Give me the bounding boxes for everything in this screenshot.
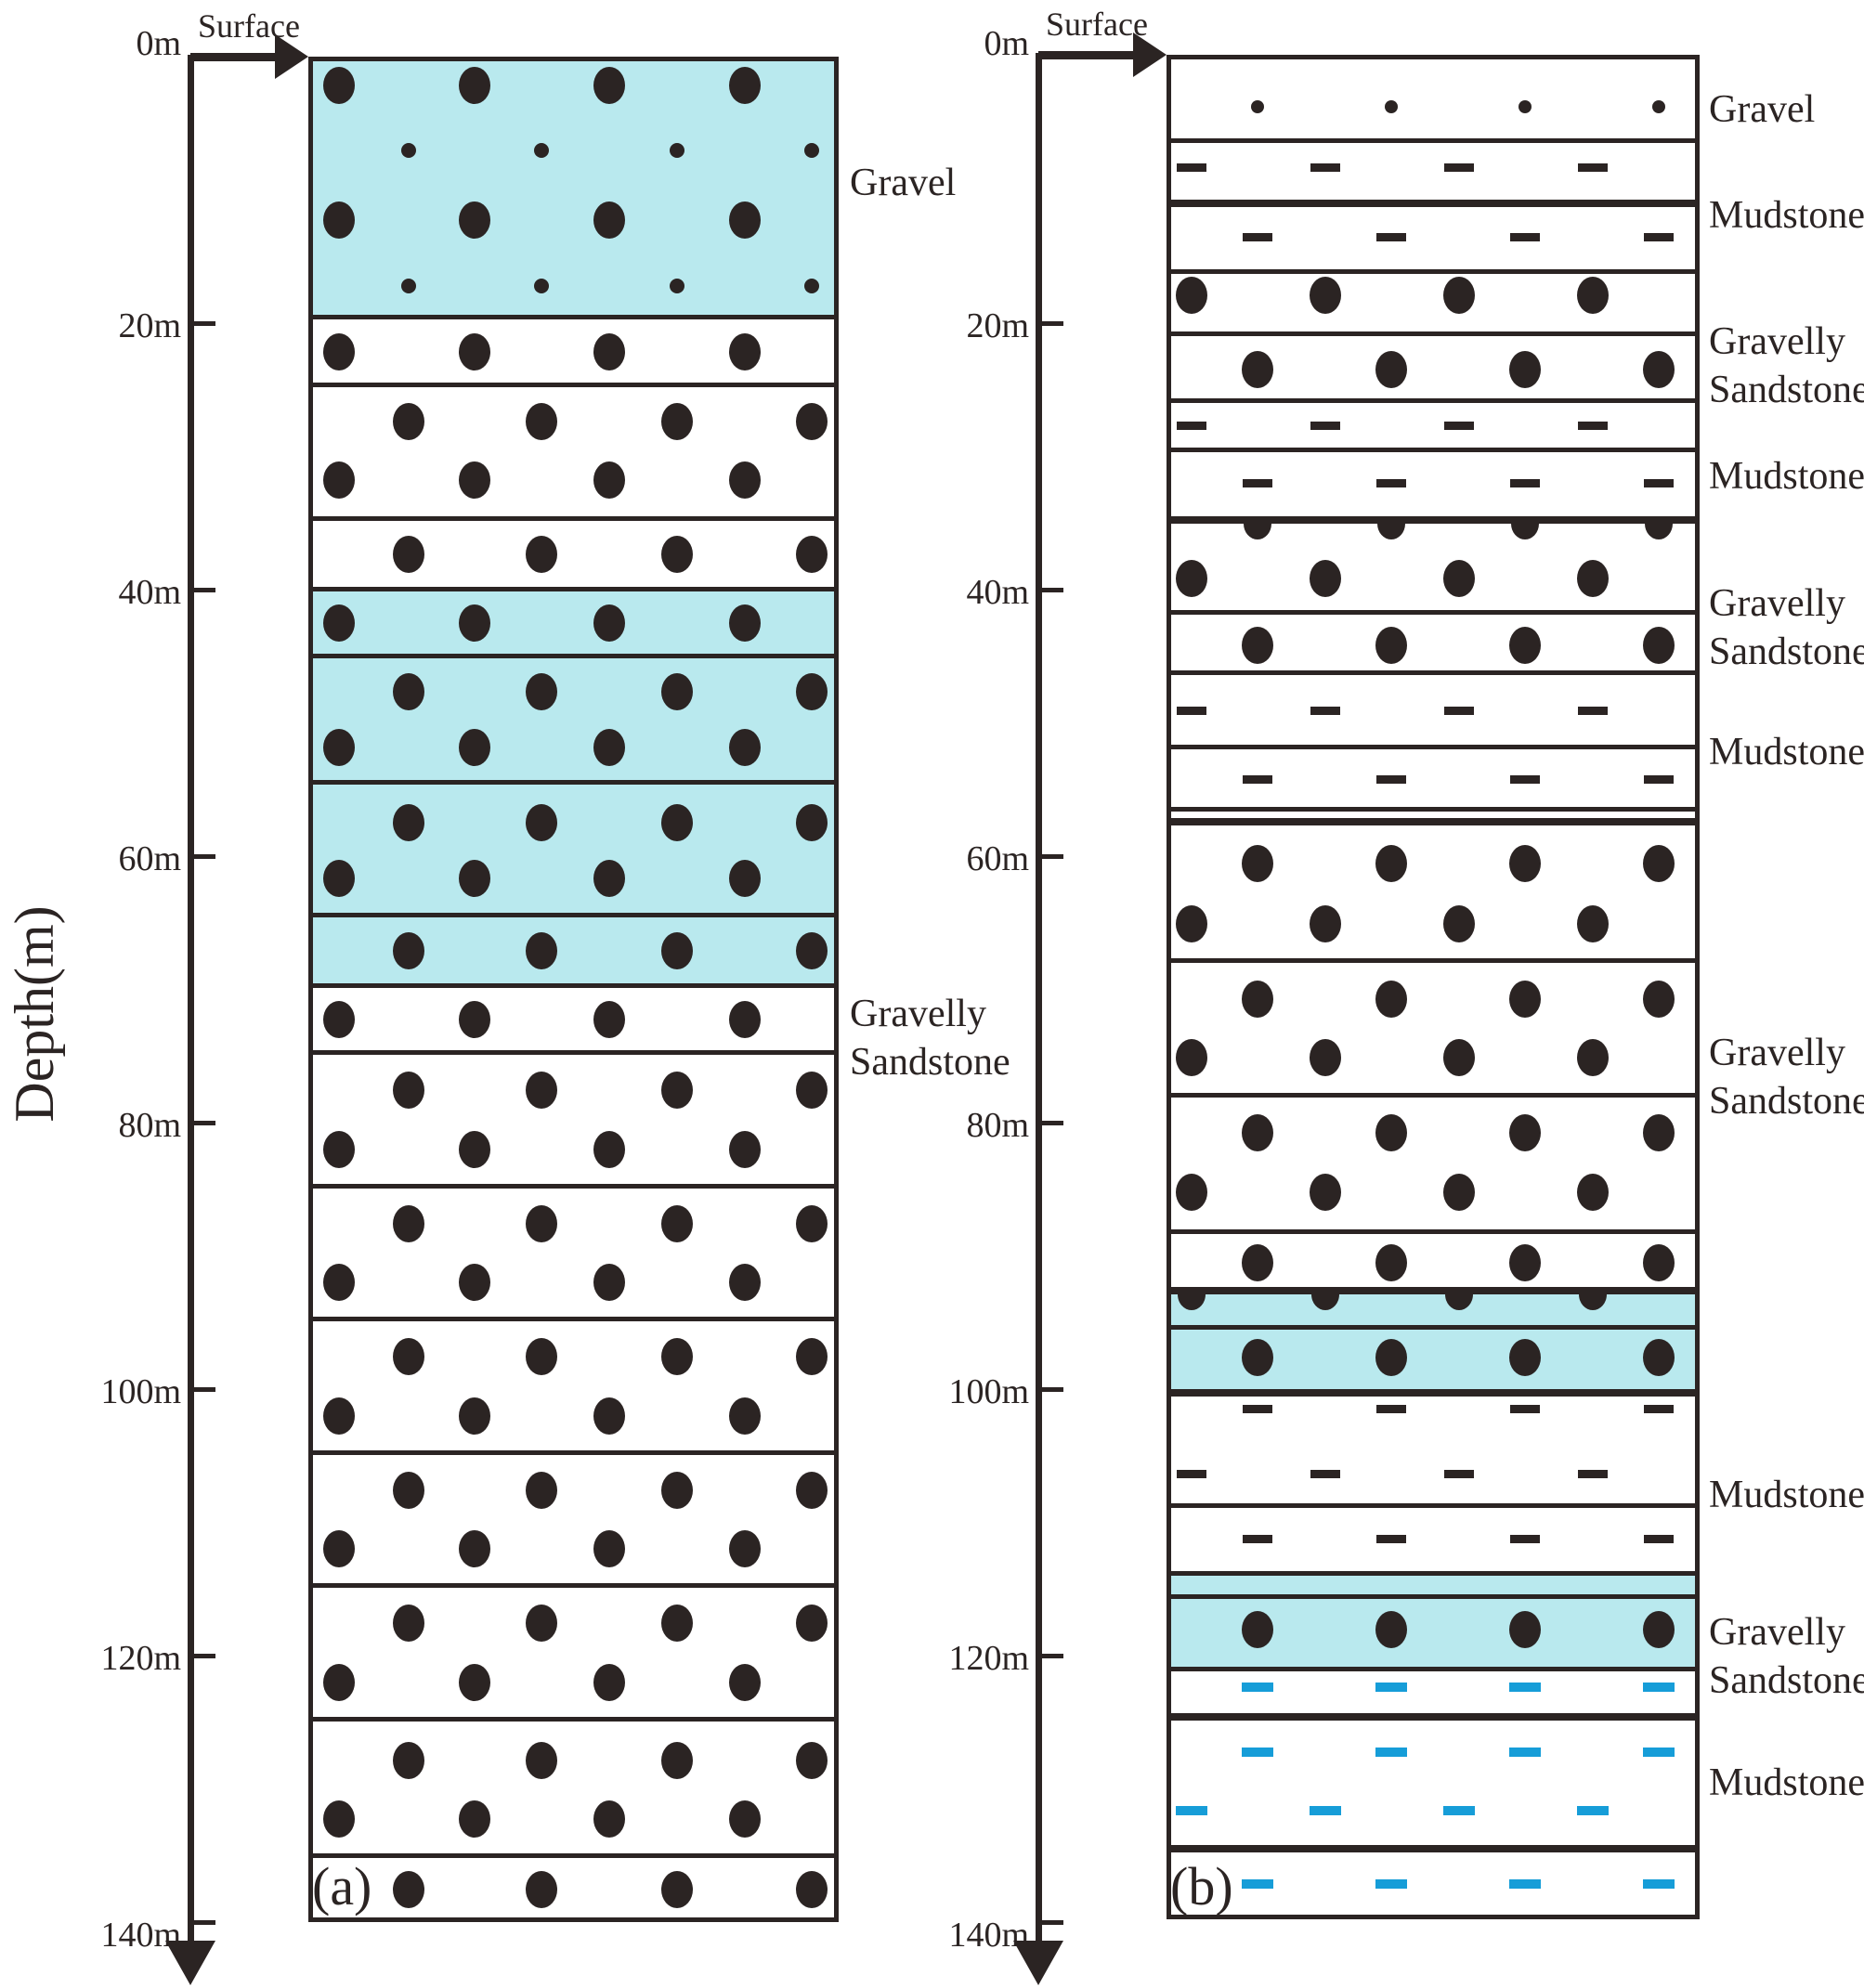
lithology-label: Sandstone	[850, 1038, 1010, 1086]
lithology-label: Gravelly	[1709, 1608, 1845, 1657]
surface-arrow-line	[1038, 51, 1139, 59]
surface-label: Surface	[198, 6, 300, 45]
column-caption: (b)	[1170, 1857, 1233, 1917]
depth-tick	[1038, 1920, 1063, 1925]
depth-tick-label: 140m	[880, 1913, 1029, 1957]
lithology-label: Gravel	[1709, 85, 1815, 134]
depth-tick	[1038, 854, 1063, 859]
depth-tick-label: 120m	[880, 1636, 1029, 1681]
depth-tick	[190, 588, 215, 592]
surface-label: Surface	[1046, 5, 1148, 44]
depth-tick-label: 140m	[33, 1913, 181, 1957]
depth-tick-label: 40m	[880, 570, 1029, 615]
depth-tick-label: 20m	[880, 304, 1029, 348]
depth-tick	[1038, 1387, 1063, 1392]
depth-tick	[1038, 321, 1063, 326]
lithology-label: Gravelly	[850, 990, 986, 1038]
depth-tick-label: 20m	[33, 304, 181, 348]
depth-axis-title: Depth(m)	[0, 875, 72, 1153]
surface-arrow-line	[190, 53, 280, 61]
lithology-label: Mudstone	[1709, 728, 1864, 776]
depth-tick-label: 40m	[33, 570, 181, 615]
depth-tick	[190, 1654, 215, 1658]
depth-tick-label: 120m	[33, 1636, 181, 1681]
depth-tick-label: 0m	[880, 21, 1029, 66]
lithology-label: Sandstone	[1709, 1077, 1864, 1125]
depth-tick	[190, 1387, 215, 1392]
depth-tick-label: 80m	[880, 1103, 1029, 1148]
depth-tick-label: 60m	[880, 837, 1029, 881]
depth-tick	[1038, 1121, 1063, 1125]
column-box-b	[1167, 55, 1700, 1919]
lithology-label: Sandstone	[1709, 366, 1864, 414]
depth-tick	[190, 1920, 215, 1925]
lithology-label: Gravel	[850, 159, 956, 207]
lithology-label: Gravelly	[1709, 1029, 1845, 1077]
depth-tick	[190, 321, 215, 326]
depth-tick	[190, 1121, 215, 1125]
lithology-label: Sandstone	[1709, 628, 1864, 676]
depth-axis-line	[1036, 53, 1042, 1943]
lithology-label: Mudstone	[1709, 191, 1864, 240]
depth-tick-label: 0m	[33, 21, 181, 66]
column-caption: (a)	[312, 1857, 371, 1917]
column-box-a	[308, 57, 839, 1922]
depth-axis-line	[188, 55, 194, 1943]
depth-tick-label: 100m	[880, 1370, 1029, 1414]
lithology-label: Gravelly	[1709, 318, 1845, 366]
lithology-label: Mudstone	[1709, 1759, 1864, 1807]
stratigraphic-log-figure: Surface0m20m40m60m80m100m120m140mDepth(m…	[0, 0, 1864, 1988]
depth-tick	[1038, 1654, 1063, 1658]
lithology-label: Gravelly	[1709, 579, 1845, 628]
lithology-label: Mudstone	[1709, 1471, 1864, 1519]
lithology-label: Mudstone	[1709, 452, 1864, 500]
depth-tick	[1038, 588, 1063, 592]
depth-tick-label: 100m	[33, 1370, 181, 1414]
lithology-label: Sandstone	[1709, 1657, 1864, 1705]
depth-tick	[190, 854, 215, 859]
